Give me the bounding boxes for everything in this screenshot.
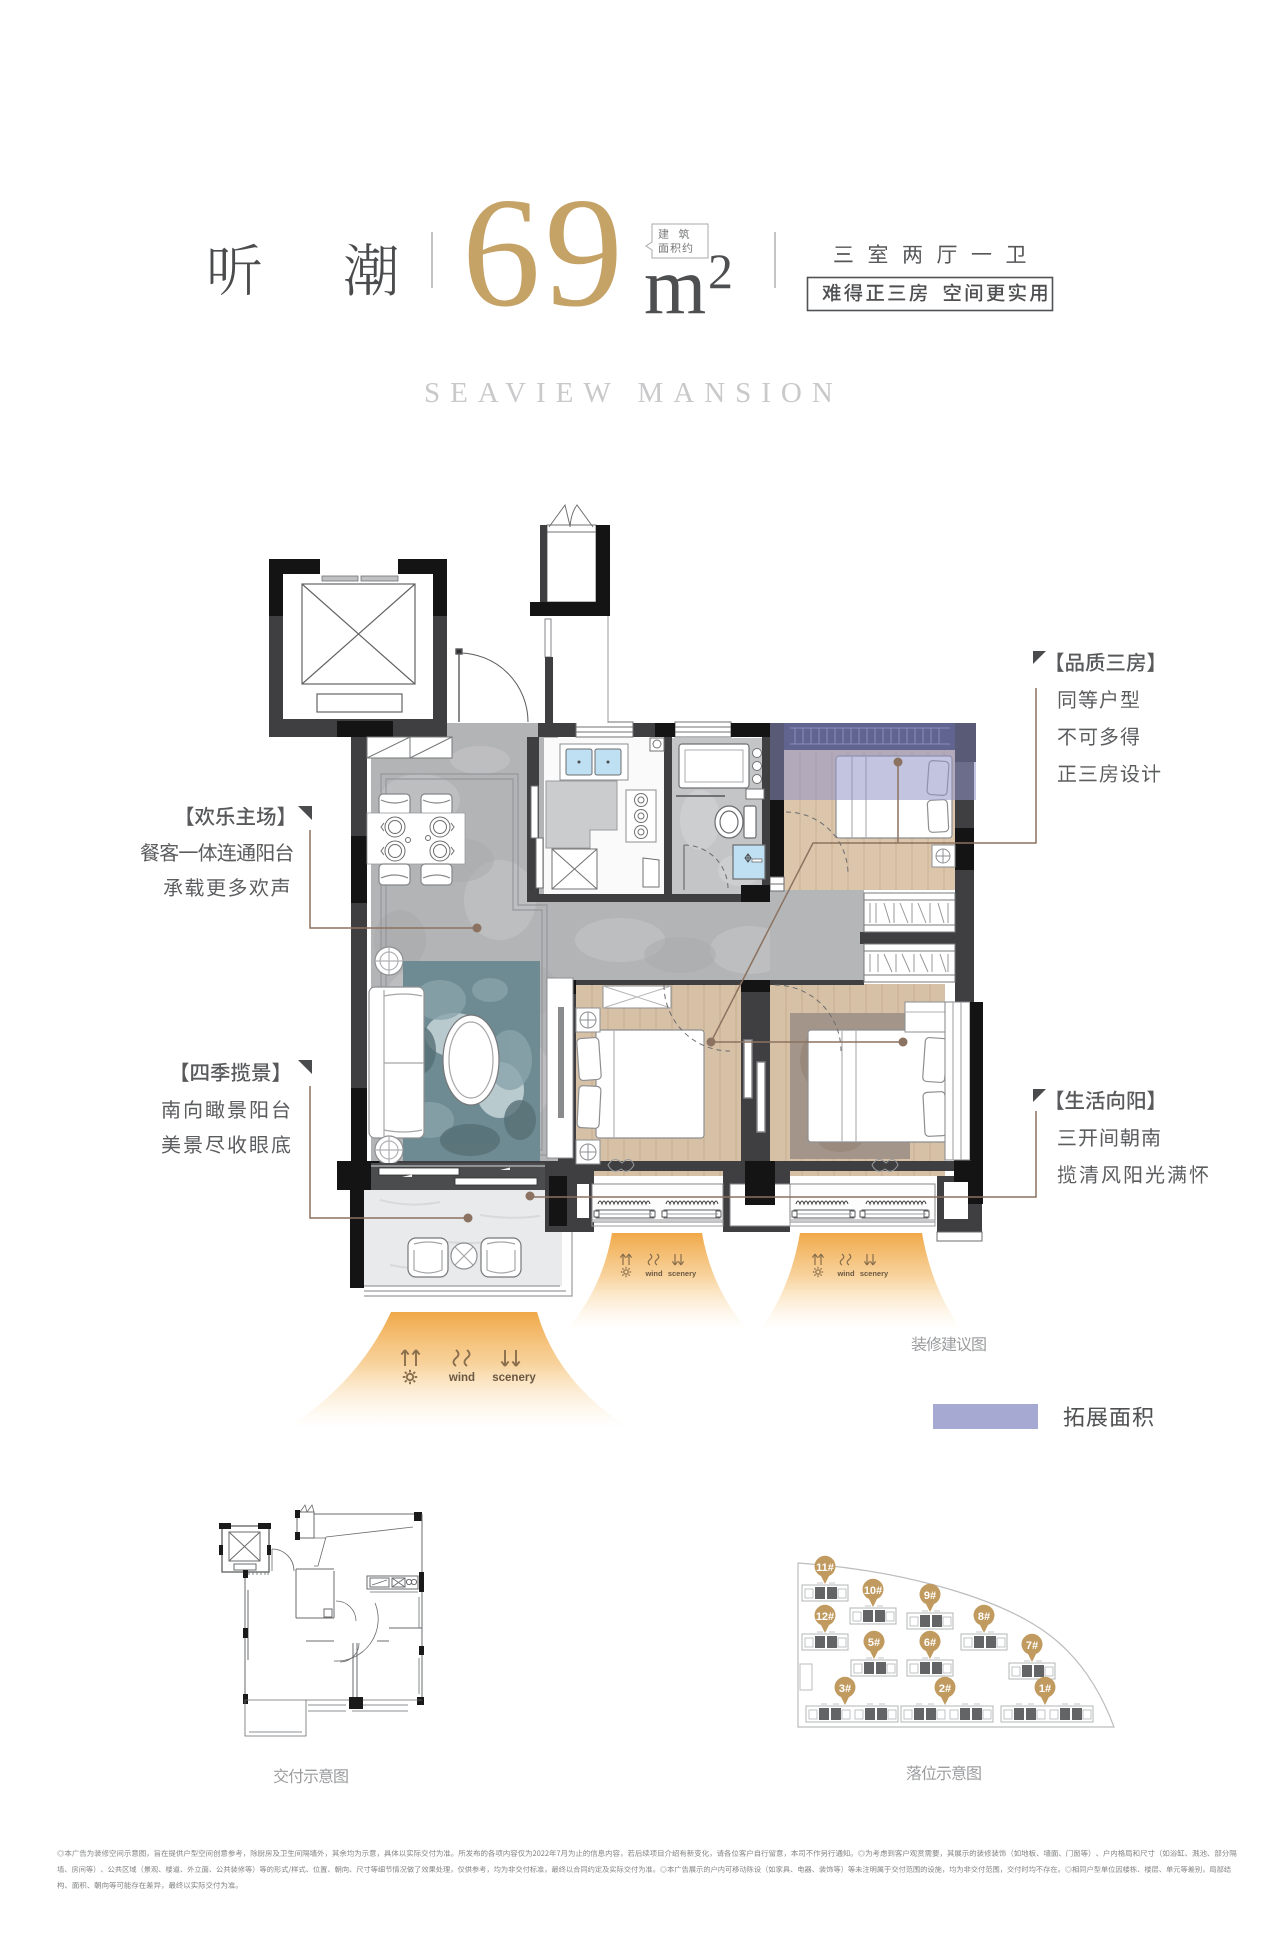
svg-text:12#: 12#: [816, 1611, 834, 1623]
svg-text:scenery: scenery: [668, 1269, 697, 1278]
svg-text:7#: 7#: [1026, 1640, 1038, 1652]
svg-text:6#: 6#: [924, 1637, 936, 1649]
svg-text:10#: 10#: [864, 1585, 882, 1597]
svg-text:8#: 8#: [978, 1611, 990, 1623]
svg-text:69: 69: [462, 165, 627, 339]
svg-text:scenery: scenery: [492, 1372, 536, 1384]
svg-text:11#: 11#: [816, 1562, 834, 1574]
svg-text:2#: 2#: [939, 1683, 951, 1695]
svg-text:wind: wind: [448, 1372, 475, 1384]
svg-text:5#: 5#: [868, 1637, 880, 1649]
svg-text:wind: wind: [644, 1269, 662, 1278]
svg-text:SEAVIEW MANSION: SEAVIEW MANSION: [424, 377, 843, 409]
svg-text:3#: 3#: [839, 1683, 851, 1695]
svg-text:9#: 9#: [924, 1590, 936, 1602]
svg-text:scenery: scenery: [860, 1269, 889, 1278]
svg-text:wind: wind: [836, 1269, 854, 1278]
svg-text:1#: 1#: [1039, 1683, 1051, 1695]
svg-text:2: 2: [708, 243, 733, 299]
